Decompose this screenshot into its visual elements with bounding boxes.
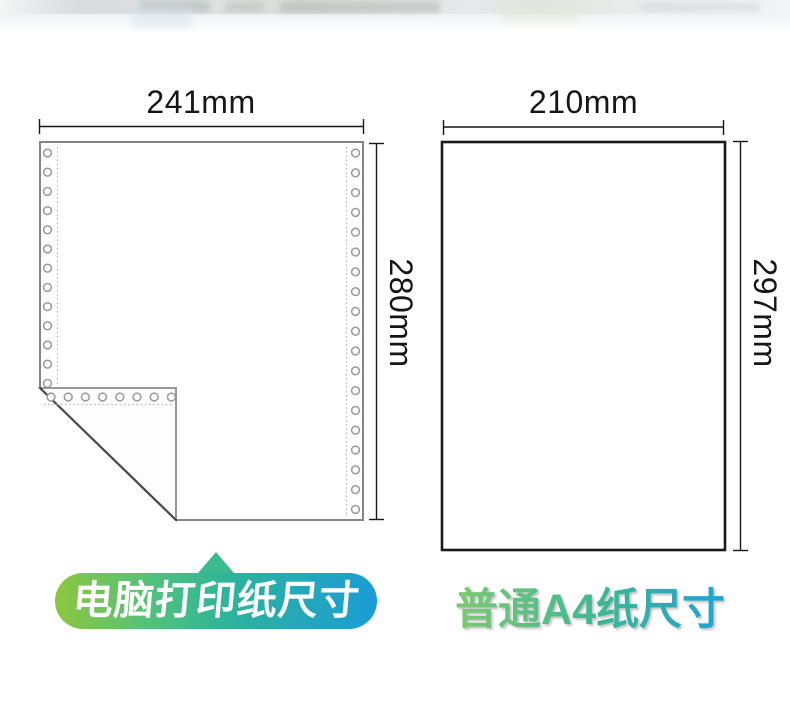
printer-paper-height-label: 280mm <box>383 248 419 378</box>
printer-paper-outline <box>40 142 363 520</box>
paper-size-comparison-infographic: 241mm 280mm 210mm 297mm 电脑打印纸尺寸 普通A4纸尺寸 <box>0 0 790 702</box>
a4-paper-width-label: 210mm <box>442 84 725 120</box>
printer-paper-caption: 电脑打印纸尺寸 <box>70 573 362 629</box>
width-dimension-line-printer <box>39 119 364 134</box>
printer-paper-width-label: 241mm <box>38 84 364 120</box>
a4-paper-height-label: 297mm <box>747 248 783 378</box>
a4-paper-caption: 普通A4纸尺寸 <box>445 584 735 636</box>
height-dimension-line-a4 <box>733 141 748 551</box>
printer-paper-caption-badge: 电脑打印纸尺寸 <box>55 573 377 629</box>
width-dimension-line-a4 <box>443 120 724 135</box>
height-dimension-line-printer <box>369 143 384 520</box>
a4-paper-outline <box>442 142 725 550</box>
up-pointer-triangle <box>198 552 234 573</box>
